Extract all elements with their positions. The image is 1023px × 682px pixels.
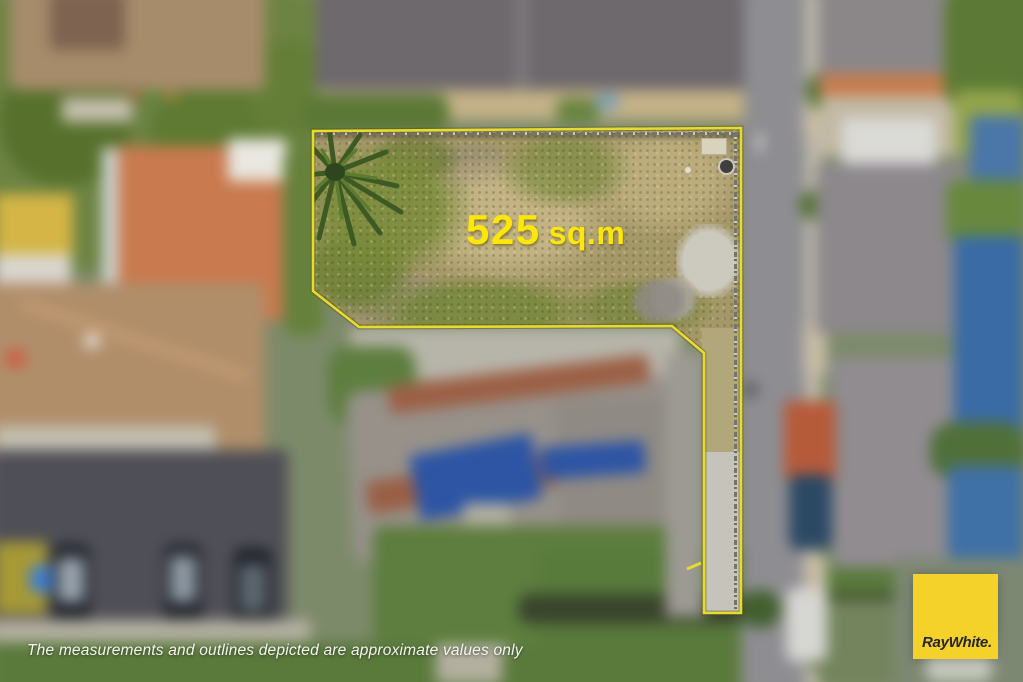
dirt-patch — [632, 278, 686, 324]
house-roof — [316, 0, 744, 97]
house-roof — [948, 466, 1023, 572]
house-roof — [816, 164, 966, 334]
lawn — [818, 600, 898, 682]
house-roof — [50, 0, 125, 50]
fence-line-right — [734, 132, 737, 612]
house-roof — [10, 0, 265, 90]
raywhite-logo-text: RayWhite. — [922, 634, 992, 651]
well-cover — [718, 158, 735, 175]
object — [596, 94, 618, 110]
ground-marker — [685, 167, 691, 173]
building-roof — [228, 139, 286, 181]
lawn — [946, 180, 1023, 244]
hedge — [304, 94, 449, 132]
aerial-photo: 525sq.m The measurements and outlines de… — [0, 0, 1023, 682]
car — [168, 92, 177, 101]
road-marking — [757, 134, 762, 151]
car — [789, 474, 832, 550]
car — [786, 588, 827, 662]
hedge — [556, 98, 600, 122]
agave-plant — [298, 126, 413, 251]
lot-area-value: 525 — [466, 206, 541, 253]
concrete-pad — [701, 138, 727, 155]
raywhite-logo: RayWhite. — [913, 574, 998, 659]
object — [743, 382, 758, 397]
path — [62, 98, 132, 122]
building-roof — [0, 194, 73, 256]
lot-area-label: 525sq.m — [466, 206, 625, 254]
roof-ridge — [518, 0, 525, 92]
object — [6, 350, 25, 367]
driveway — [666, 353, 704, 617]
car-roof — [170, 556, 196, 602]
aerial-photo-background — [0, 0, 1023, 682]
object — [84, 334, 100, 348]
tree — [739, 590, 781, 628]
car-roof — [58, 558, 84, 602]
road — [741, 0, 805, 682]
house-roof — [820, 74, 954, 96]
car — [148, 94, 157, 103]
carport-roof — [784, 401, 836, 480]
disclaimer-text: The measurements and outlines depicted a… — [27, 642, 523, 660]
house-roof — [954, 236, 1023, 438]
car-roof — [240, 564, 266, 612]
lot-area-unit: sq.m — [549, 215, 626, 251]
